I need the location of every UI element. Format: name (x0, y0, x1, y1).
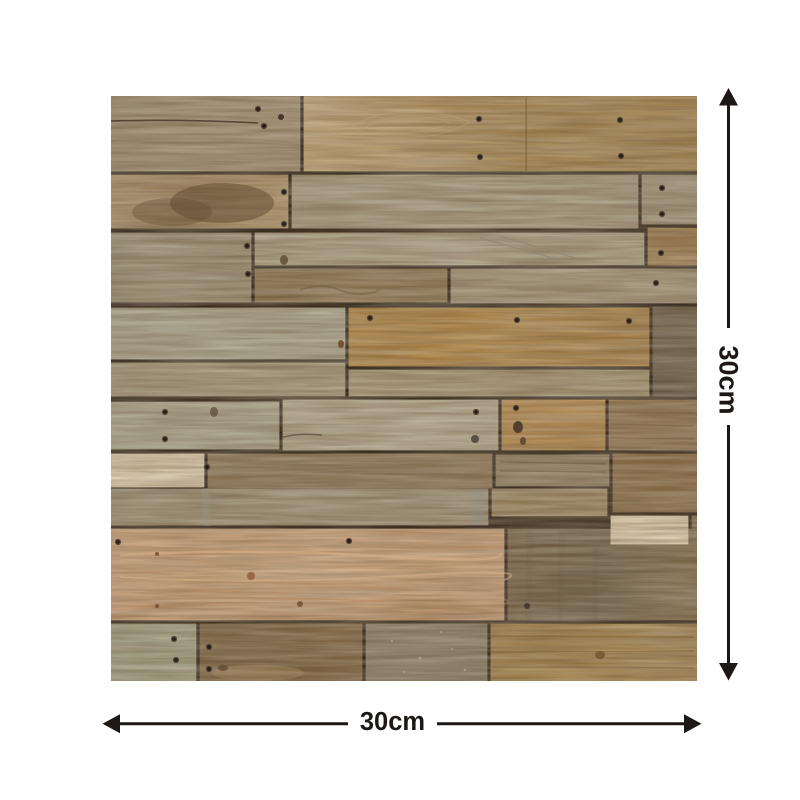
svg-text:30cm: 30cm (360, 708, 425, 736)
svg-text:30cm: 30cm (714, 345, 744, 414)
